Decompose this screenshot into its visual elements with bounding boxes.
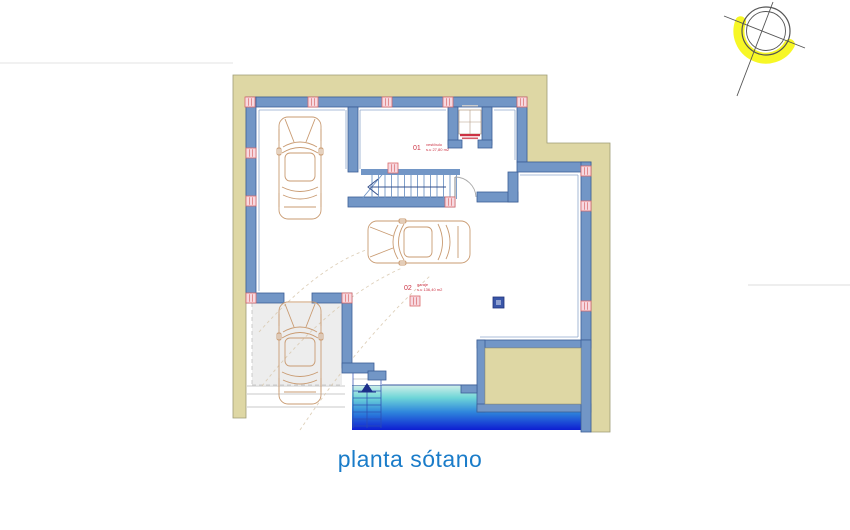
stair-direction-arrow-icon [368, 179, 446, 195]
room1-number: 01 [413, 145, 421, 152]
car-top-view-2 [368, 219, 470, 265]
room-label-vestibulo: 01 vestíbulo s.u 27,80 m2 [413, 142, 450, 152]
structural-column [493, 297, 504, 308]
room2-number: 02 [404, 285, 412, 292]
car-top-view-1 [277, 117, 323, 219]
compass-rose-icon [724, 2, 805, 96]
main-staircase [361, 169, 460, 200]
door-swing [455, 177, 476, 197]
elevator [459, 105, 481, 139]
elevator-door [460, 134, 480, 136]
floorplan-canvas: 01 vestíbulo s.u 27,80 m2 02 garaje s.u … [0, 0, 850, 530]
storage-room-fill [485, 348, 581, 404]
floorplan-svg: 01 vestíbulo s.u 27,80 m2 02 garaje s.u … [0, 0, 850, 530]
page-title: planta sótano [338, 446, 483, 472]
room1-area: s.u 27,80 m2 [426, 147, 450, 152]
room2-area: s.u 136,40 m2 [417, 287, 443, 292]
room-label-garaje: 02 garaje s.u 136,40 m2 [404, 282, 443, 292]
